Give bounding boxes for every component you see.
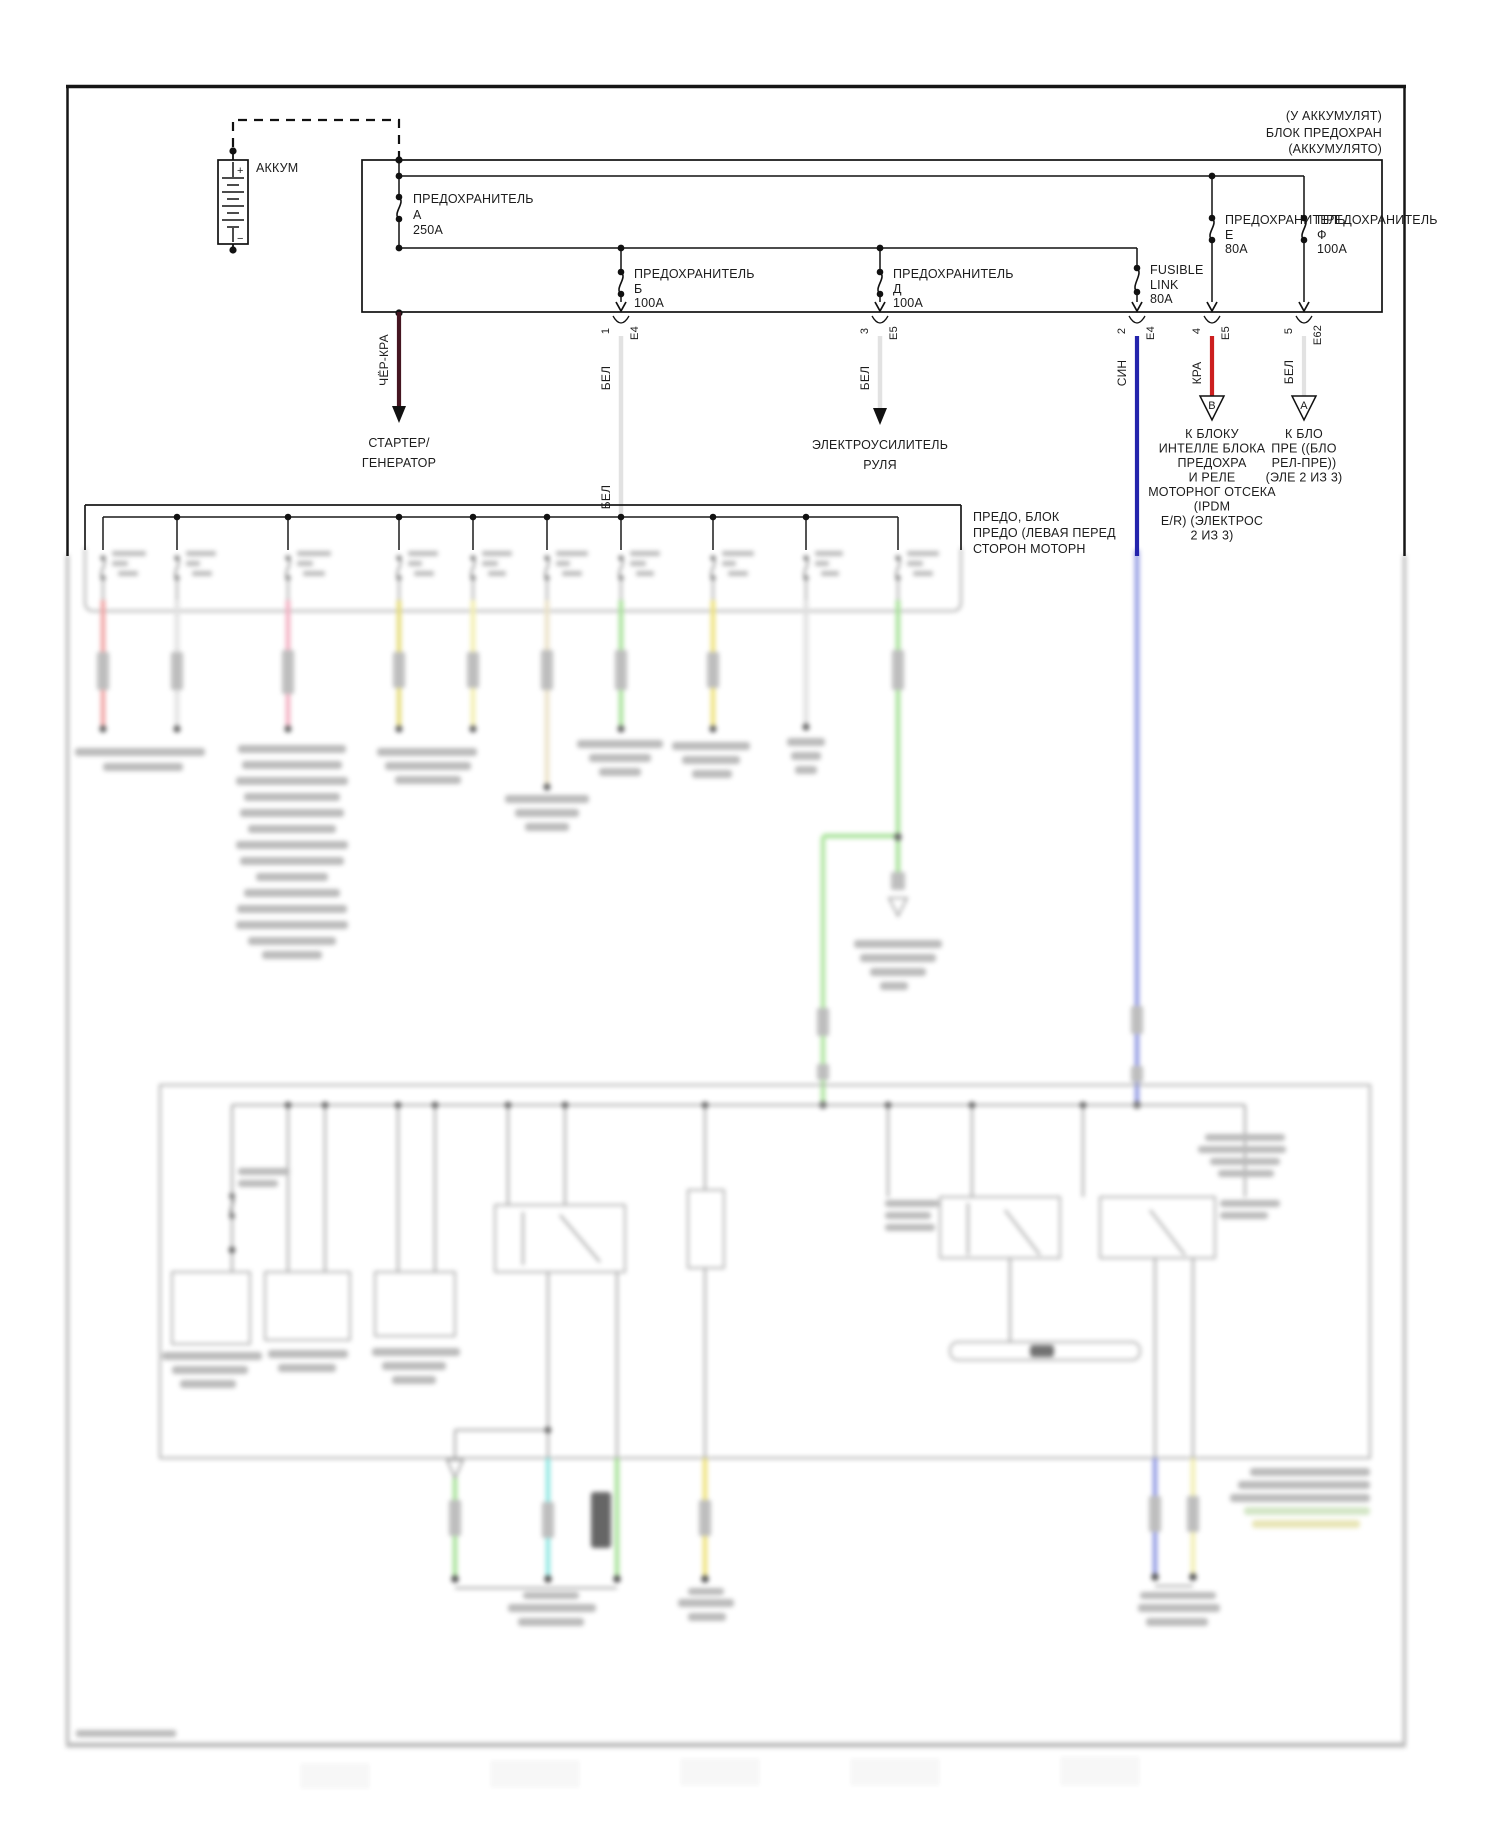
pin-1: 1 [600,328,612,334]
connector-cups [613,316,1312,323]
connector-e5-a: Е5 [888,326,900,340]
connector-e5-b: Е5 [1220,326,1232,340]
relay-l2: ПРЕ ((БЛО [1271,442,1336,456]
ipdm-l7: E/R) (ЭЛЕКТРОС [1161,514,1263,528]
arrow-down-icon [392,406,406,423]
fuse-box-note-line3: (АККУМУЛЯТО) [1288,142,1382,156]
starter-label-line1: СТАРТЕР/ [368,436,430,450]
connector-e62: Е62 [1312,325,1324,345]
wire-label-cher-kra: ЧЁР-КРА [377,334,391,386]
relay-box-branch: БЕЛ А К БЛО ПРЕ ((БЛО РЕЛ-ПРЕ)) (ЭЛЕ 2 И… [1266,336,1343,485]
fuse-d: ПРЕДОХРАНИТЕЛЬ Д 100А [877,267,1014,310]
battery-minus-sign: − [237,233,244,245]
fusible-link-title: FUSIBLE [1150,263,1204,277]
relay-l1: К БЛО [1285,427,1323,441]
fuse-e-id: Е [1225,228,1234,242]
fuse-block-label-line2: ПРЕДО (ЛЕВАЯ ПЕРЕД [973,526,1116,540]
wiring-diagram-page: + − АККУМ (У АККУМУЛЯТ) БЛОК ПРЕДОХРАН (… [0,0,1500,1828]
fuse-b-title: ПРЕДОХРАНИТЕЛЬ [634,267,755,281]
connector-e4-a: Е4 [629,326,641,340]
sin-wire: СИН [1115,336,1137,556]
pin-3: 3 [859,328,871,334]
fuse-a-id: А [413,208,422,222]
ipdm-l6: (IPDM [1194,500,1230,514]
pin-4: 4 [1191,328,1203,334]
relay-l3: РЕЛ-ПРЕ)) [1272,456,1337,470]
battery-label: АККУМ [256,161,298,175]
ipdm-l2: ИНТЕЛЛЕ БЛОКА [1159,442,1266,456]
crisp-schematic: + − АККУМ (У АККУМУЛЯТ) БЛОК ПРЕДОХРАН (… [0,0,1500,1828]
fuse-d-rating: 100А [893,296,923,310]
ipdm-l5: МОТОРНОГ ОТСЕКА [1148,485,1276,499]
fuse-d-id: Д [893,282,902,296]
battery-symbol: + − АККУМ [218,147,298,253]
ipdm-branch: КРА В К БЛОКУ ИНТЕЛЛЕ БЛОКА ПРЕДОХРА И Р… [1148,336,1276,543]
fuse-f-title: ПРЕДОХРАНИТЕЛЬ [1317,213,1438,227]
fuse-b-rating: 100А [634,296,664,310]
fuse-b: ПРЕДОХРАНИТЕЛЬ Б 100А [618,267,755,310]
eps-label-line1: ЭЛЕКТРОУСИЛИТЕЛЬ [812,438,948,452]
wire-label-bel-f: БЕЛ [1282,360,1296,384]
fuse-a-title: ПРЕДОХРАНИТЕЛЬ [413,192,534,206]
fuse-a: ПРЕДОХРАНИТЕЛЬ А 250А [396,192,534,237]
relay-l4: (ЭЛЕ 2 ИЗ 3) [1266,471,1343,485]
exit-arrows [616,302,1309,311]
eps-branch: БЕЛ ЭЛЕКТРОУСИЛИТЕЛЬ РУЛЯ [812,336,948,472]
fuse-d-title: ПРЕДОХРАНИТЕЛЬ [893,267,1014,281]
engine-fuse-block: ПРЕДО, БЛОК ПРЕДО (ЛЕВАЯ ПЕРЕД СТОРОН МО… [85,505,1116,556]
battery-fuse-box: (У АККУМУЛЯТ) БЛОК ПРЕДОХРАН (АККУМУЛЯТО… [362,109,1382,312]
fuse-a-rating: 250А [413,223,443,237]
wire-label-bel-upper: БЕЛ [599,366,613,390]
ipdm-l1: К БЛОКУ [1185,427,1239,441]
fuse-f: ПРЕДОХРАНИТЕЛЬ Ф 100А [1301,213,1438,256]
fuse-box-note-line1: (У АККУМУЛЯТ) [1286,109,1382,123]
fuse-f-rating: 100А [1317,242,1347,256]
pin-2: 2 [1116,328,1128,334]
wire-label-bel-d: БЕЛ [858,366,872,390]
ipdm-l8: 2 ИЗ 3) [1191,529,1234,543]
fuse-e-rating: 80А [1225,242,1248,256]
connector-e4-b: Е4 [1145,326,1157,340]
eps-label-line2: РУЛЯ [863,458,897,472]
fuse-b-id: Б [634,282,642,296]
fuse-f-id: Ф [1317,228,1327,242]
battery-feed-dashed-wire [233,120,399,157]
battery-plus-sign: + [237,165,244,177]
fuse-b-feed-wire: БЕЛ БЕЛ [599,336,621,517]
fuse-block-label-line3: СТОРОН МОТОРН [973,542,1086,556]
arrow-down-icon [873,408,887,425]
ipdm-l3: ПРЕДОХРА [1177,456,1247,470]
triangle-a-letter: А [1300,400,1308,412]
fuse-block-label-line1: ПРЕДО, БЛОК [973,510,1060,524]
wire-label-sin: СИН [1115,360,1129,387]
fusible-link-rating: 80А [1150,292,1173,306]
wire-label-kra: КРА [1190,362,1204,385]
starter-branch: ЧЁР-КРА СТАРТЕР/ ГЕНЕРАТОР [362,309,436,470]
ipdm-l4: И РЕЛЕ [1189,471,1236,485]
connector-pin-labels: 1 Е4 3 Е5 2 Е4 4 Е5 5 Е62 [600,325,1324,345]
fusible-link-id: LINK [1150,278,1179,292]
triangle-b-letter: В [1208,400,1216,412]
starter-label-line2: ГЕНЕРАТОР [362,456,436,470]
fusible-link: FUSIBLE LINK 80А [1134,263,1204,306]
fuse-box-note-line2: БЛОК ПРЕДОХРАН [1266,126,1382,140]
pin-5: 5 [1283,328,1295,334]
